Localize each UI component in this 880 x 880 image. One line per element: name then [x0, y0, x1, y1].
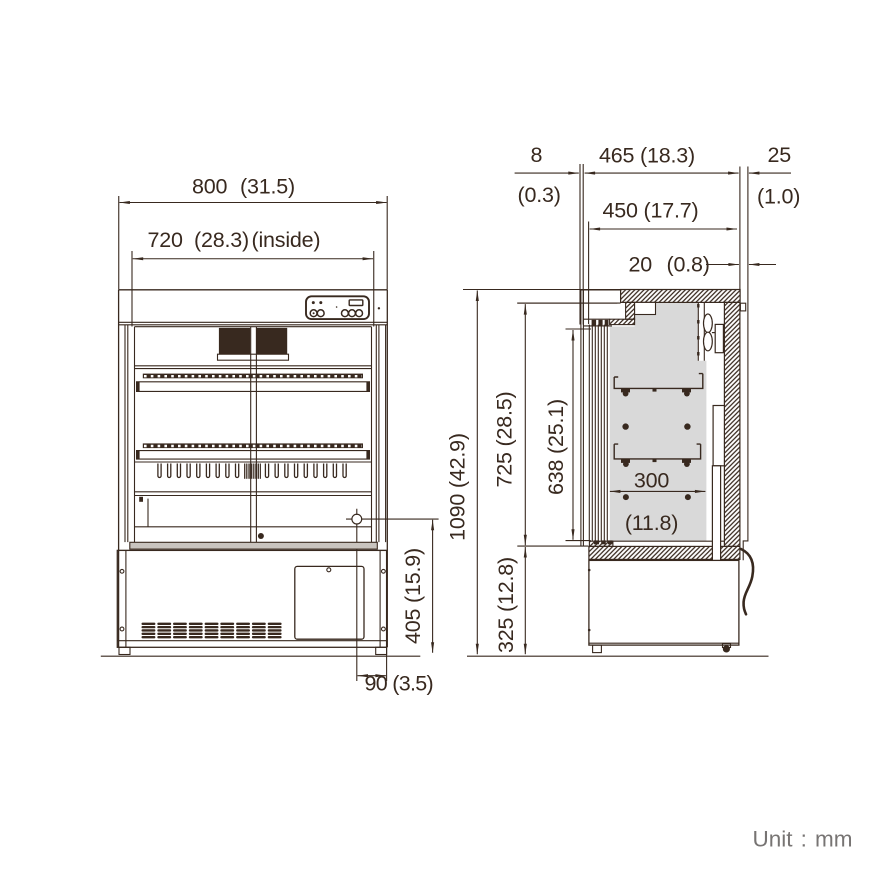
- svg-text:8: 8: [531, 143, 543, 167]
- svg-text:90 (3.5): 90 (3.5): [365, 672, 434, 696]
- svg-text:720: 720: [148, 228, 184, 252]
- svg-text:325 (12.8): 325 (12.8): [494, 557, 518, 653]
- svg-text:725 (28.5): 725 (28.5): [493, 391, 517, 487]
- svg-text:Unit : mm: Unit : mm: [753, 827, 853, 852]
- svg-text:1090 (42.9): 1090 (42.9): [446, 433, 470, 541]
- svg-text:300: 300: [634, 468, 670, 492]
- svg-text:(0.3): (0.3): [518, 183, 561, 207]
- svg-text:405 (15.9): 405 (15.9): [401, 548, 425, 644]
- svg-text:(inside): (inside): [252, 228, 321, 252]
- svg-text:(11.8): (11.8): [625, 511, 678, 535]
- svg-text:(0.8): (0.8): [667, 253, 710, 277]
- svg-text:638 (25.1): 638 (25.1): [544, 399, 568, 495]
- svg-text:(28.3): (28.3): [194, 228, 249, 252]
- svg-text:465 (18.3): 465 (18.3): [599, 144, 695, 168]
- svg-text:20: 20: [629, 253, 653, 277]
- svg-text:450 (17.7): 450 (17.7): [603, 199, 699, 223]
- svg-text:800: 800: [192, 175, 228, 199]
- svg-text:(31.5): (31.5): [240, 175, 295, 199]
- svg-text:25: 25: [768, 143, 792, 167]
- svg-text:(1.0): (1.0): [757, 185, 800, 209]
